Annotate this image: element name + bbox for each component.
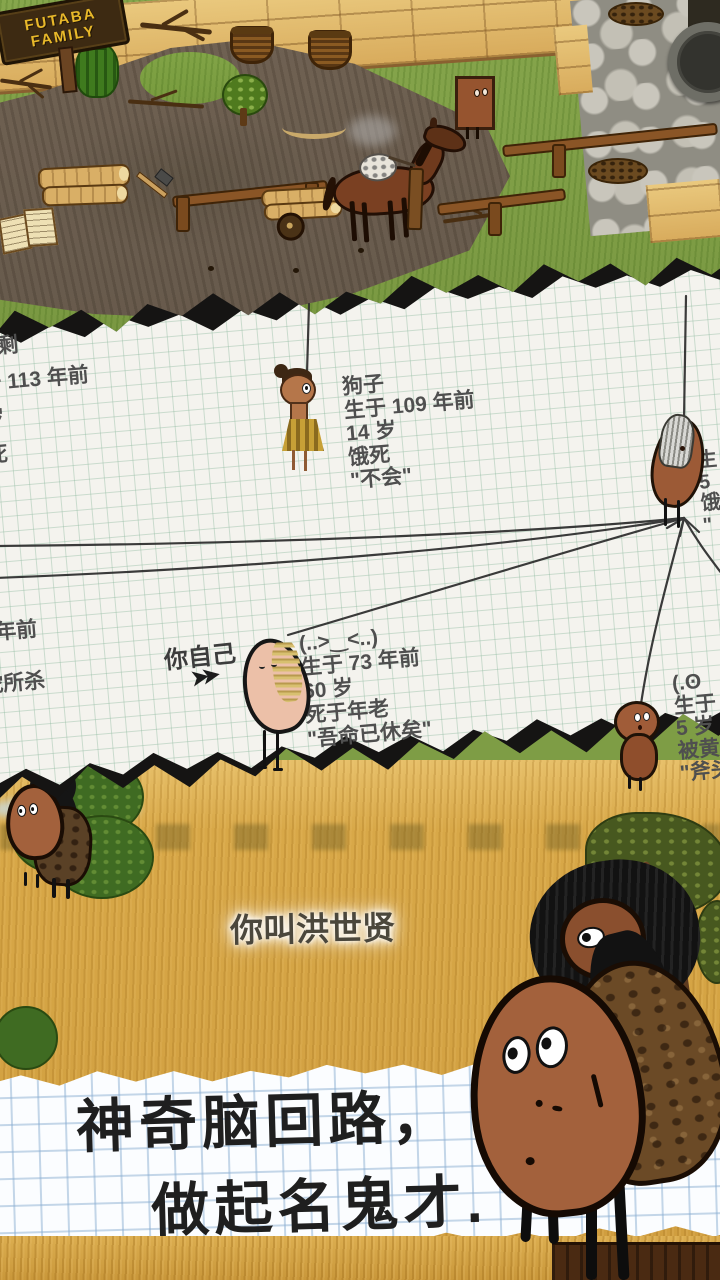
family-entry-dog-child: 狗子 生于 109 年前 14 岁 饿死 "不会" [341,365,481,493]
family-entry-left-top: 剩 于 113 年前 岁 死 [0,322,97,475]
entry-line: 7 年前 [0,603,43,660]
entry-line: 蛇所杀 [0,655,47,712]
character-you[interactable] [243,638,313,778]
entry-line: 死 [0,429,97,474]
game-screenshot: FUTABA FAMILY 剩 于 1 [0,0,720,1280]
character-child-right[interactable] [614,701,660,793]
family-entry-child-right: (.ʘ 生于 5 岁 被黄 "斧头 [671,669,720,786]
character-dog-child[interactable] [280,372,328,477]
character-mother-and-baby-large[interactable] [460,840,720,1280]
family-entry-left-bottom: 7 年前 蛇所杀 [0,603,47,712]
you-arrow-icon: ➤➤ [188,664,214,691]
entry-line: " [702,514,720,537]
mother-leg [613,1182,629,1280]
family-entry-you: (..>‿<..) 生于 73 年前 60 岁 死于年老 "吾命已休矣" [298,622,433,752]
character-elder-right[interactable] [652,418,704,528]
caption-line1: 神奇脑回路， [75,1070,455,1165]
entry-line: "斧头 [679,759,720,786]
caption-line2: 做起名鬼才. [150,1155,488,1248]
